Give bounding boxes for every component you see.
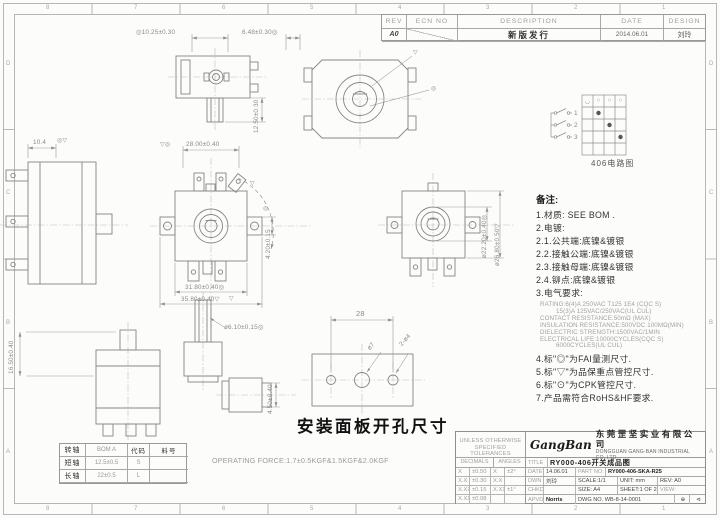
shaft-cell: 短轴 <box>60 457 86 470</box>
view-shaft <box>184 300 224 382</box>
dim-label: 28 <box>356 309 365 318</box>
inspection-marker: ◎ <box>431 85 436 92</box>
rev-header: DESIGN <box>664 15 705 29</box>
zone-col-label: 6 <box>222 506 225 512</box>
zone-col-label: 1 <box>662 5 665 11</box>
title-label: TITLE <box>526 458 548 467</box>
shaft-cell: 22±0.5 <box>86 470 128 483</box>
projection-circle-icon: ⊕ <box>675 495 690 504</box>
tol-cell: ±0.15 <box>470 486 491 495</box>
zone-col-label: 3 <box>486 5 489 11</box>
tol-cell: X.XX <box>491 486 505 495</box>
unit-value: UNIT: mm <box>618 477 658 485</box>
electrical-line: 6000CYCLES(UL CUL) <box>556 343 720 350</box>
zone-col-label: 8 <box>46 5 49 11</box>
note-line: 6.标"⊙"为CPK管控尺寸. <box>536 379 720 392</box>
zone-col-label: 8 <box>46 506 49 512</box>
inspection-marker: ▽ <box>229 295 234 302</box>
projection-cone-icon: ⊲ <box>690 495 705 504</box>
rev-header: REV <box>382 15 407 29</box>
note-line: 1.材质: SEE BOM . <box>536 209 720 222</box>
dim-label: 4.20±0.15 <box>265 229 272 259</box>
zone-row-label: A <box>6 449 10 455</box>
angles-header: ANGLES <box>494 458 525 467</box>
inspection-marker: ▽◎ <box>160 141 170 148</box>
tolerance-table: UNLESS OTHERWISE SPECIFIED TOLERANCES DE… <box>456 432 526 503</box>
panel-cutout-caption: 安装面板开孔尺寸 <box>297 413 449 437</box>
shaft-cell: L <box>128 470 150 483</box>
dim-label: ø26.80±0.50▽ <box>494 223 501 266</box>
dim-label: 28.00±0.40 <box>186 141 219 148</box>
zone-col-label: 2 <box>574 506 577 512</box>
rev-value: REV: A0 <box>658 477 705 485</box>
tolerance-note: SPECIFIED TOLERANCES <box>456 445 525 458</box>
rev-header: ECN NO <box>407 15 458 29</box>
dim-label: 12.50±0.30 <box>253 100 260 133</box>
view-middle-right <box>387 183 480 276</box>
zone-col-label: 5 <box>310 5 313 11</box>
view-top-left <box>176 56 258 122</box>
inspection-marker: ▽ <box>413 49 418 56</box>
dwg-no: DWG NO. WB-8-14-0001 <box>576 495 675 504</box>
apvd-label: APVD <box>526 495 544 504</box>
zone-col-label: 2 <box>574 5 577 11</box>
inspection-marker: ◎ <box>263 205 268 212</box>
title-block: UNLESS OTHERWISE SPECIFIED TOLERANCES DE… <box>455 431 706 504</box>
note-line: 2.电镀: <box>536 222 720 235</box>
zone-row-label: C <box>6 190 10 196</box>
zone-row-label: D <box>709 61 713 67</box>
zone-col-label: 5 <box>310 506 313 512</box>
tol-cell: ±0.30 <box>470 477 491 486</box>
rev-header: DATE <box>601 15 664 29</box>
operating-force-note: OPERATING FORCE:1.7±0.5KGF&1.5KGF&2.0KGF <box>212 456 389 465</box>
dim-label: 31.80±0.40◎ <box>185 284 224 291</box>
inspection-marker: ▽ <box>250 180 255 187</box>
shaft-cell <box>150 457 188 470</box>
apvd-value: Norris <box>544 495 576 504</box>
title-block-main: GangBan 东莞罡坚实业有限公司 DONGGUAN GANG-BAN IND… <box>526 432 705 503</box>
zone-col-label: 1 <box>662 506 665 512</box>
circuit-caption: 406电路图 <box>591 158 634 169</box>
rev-date: 2014.06.01 <box>601 29 664 43</box>
tol-cell: ±1° <box>505 486 525 495</box>
view-bottom-left <box>96 330 160 436</box>
zone-col-label: 7 <box>134 5 137 11</box>
partno-label: PART NO: <box>576 468 606 476</box>
zone-col-label: 4 <box>398 506 401 512</box>
dim-label: ø6.10±0.15◎ <box>224 324 264 331</box>
zone-row-label: A <box>709 449 713 455</box>
shaft-cell: 代码 <box>128 444 150 457</box>
tol-cell: X.XX <box>456 486 470 495</box>
tol-cell <box>505 477 525 486</box>
rev-design: 刘玲 <box>664 29 705 43</box>
note-line: 2.1.公共端:底镍&镀银 <box>536 235 720 248</box>
dwn-label: DWN <box>526 477 544 485</box>
shaft-cell <box>150 470 188 483</box>
zone-col-label: 6 <box>222 5 225 11</box>
scale-value: SCALE:1/1 <box>576 477 618 485</box>
tol-cell: X.X <box>456 477 470 486</box>
circuit-pos1-icon: ○ <box>593 97 604 104</box>
notes-title: 备注: <box>536 192 720 206</box>
dim-label: 35.80±0.40▽ <box>181 296 220 303</box>
zone-col-label: 4 <box>398 5 401 11</box>
shaft-cell: 转轴 <box>60 444 86 457</box>
shaft-cell: S <box>128 457 150 470</box>
dim-label: 16.50±0.40 <box>8 341 15 374</box>
zone-row-label: B <box>6 320 10 326</box>
circuit-pos3-icon: ○ <box>615 97 626 104</box>
tolerance-note: UNLESS OTHERWISE <box>456 438 525 445</box>
circuit-pos2-icon: ○ <box>604 97 615 104</box>
chkd-value <box>544 486 576 494</box>
note-line: 7.产品需符合RoHS&HF要求. <box>536 392 720 405</box>
shaft-cell: BOM A <box>86 444 128 457</box>
drawing-sheet: 8 7 6 5 4 3 2 1 8 7 6 5 4 3 2 1 D C B A … <box>0 0 720 518</box>
shaft-cell: 12.5±0.5 <box>86 457 128 470</box>
dim-label: ◎10.25±0.30 <box>136 29 175 36</box>
partno-value: RY000-406-SKA-R25 <box>606 468 705 476</box>
rev-value: A0 <box>382 29 407 43</box>
rev-header: DESCRIPTION <box>458 15 601 29</box>
chkd-label: CHKD <box>526 486 544 494</box>
note-line: 2.4.铆点:底镍&镀银 <box>536 274 720 287</box>
tol-cell <box>505 495 525 504</box>
circuit-pole-label: 1 <box>574 110 578 117</box>
tol-cell: X.X <box>491 477 505 486</box>
note-line: 4.标"◎"为FAI量测尺寸. <box>536 353 720 366</box>
shaft-cell: 长轴 <box>60 470 86 483</box>
tol-cell: ±2° <box>505 468 525 477</box>
note-line: 5.标"▽"为品保重点管控尺寸. <box>536 366 720 379</box>
shaft-table: 转轴 BOM A 代码 料号 短轴 12.5±0.5 S 长轴 22±0.5 L <box>59 443 187 484</box>
decimals-header: DECIMALS <box>456 458 494 467</box>
tol-cell: X.XXX <box>456 495 470 504</box>
dwn-value: 刘玲 <box>544 477 576 485</box>
drawing-title: RY000-406开关成品图 <box>548 458 705 467</box>
circuit-pole-label: 3 <box>574 134 578 141</box>
zone-col-label: 3 <box>486 506 489 512</box>
dim-label: 10.4 <box>33 139 46 146</box>
size-value: SIZE: A4 <box>576 486 618 494</box>
company-logo: GangBan <box>530 438 592 452</box>
ecn-cell <box>407 29 458 43</box>
circuit-off-icon: ◡ <box>582 97 593 105</box>
zone-col-label: 7 <box>134 506 137 512</box>
shaft-cell: 料号 <box>150 444 188 457</box>
company-name-cn: 东莞罡坚实业有限公司 <box>596 429 705 449</box>
date-value: 14.06.01 <box>544 468 576 476</box>
inspection-marker: ◎▽ <box>57 137 67 144</box>
zone-row-label: D <box>6 61 10 67</box>
note-line: 3.电气要求: <box>536 287 720 300</box>
sheet-value: SHEET:1 OF 2 <box>618 486 658 494</box>
circuit-pole-label: 2 <box>574 122 578 129</box>
view-top-right <box>304 56 429 138</box>
notes-block: 备注: 1.材质: SEE BOM . 2.电镀: 2.1.公共端:底镍&镀银 … <box>536 192 720 405</box>
view-label: VIEW: <box>658 486 705 494</box>
tol-cell <box>491 495 505 504</box>
tol-cell: X <box>456 468 470 477</box>
note-line: 2.3.接触母端:底镍&镀银 <box>536 261 720 274</box>
dim-label: 6.48±0.30◎ <box>242 29 277 36</box>
rev-description: 新版发行 <box>458 29 601 43</box>
view-middle-center <box>160 173 273 281</box>
panel-cutout <box>312 352 413 406</box>
note-line: 2.2.接触公端:底镍&镀银 <box>536 248 720 261</box>
electrical-spec: RATING:6(4)A 250VAC T125 1E4 (CQC S) 15(… <box>540 302 720 350</box>
view-middle-left <box>6 162 112 284</box>
tol-cell: X <box>491 468 505 477</box>
dim-label: ø22.20±0.40◎ <box>481 215 488 258</box>
tol-cell: ±0.50 <box>470 468 491 477</box>
revision-table: REV ECN NO DESCRIPTION DATE DESIGN A0 新版… <box>381 14 706 41</box>
dim-label: 4.50±0.40 <box>267 384 274 414</box>
tol-cell: ±0.08 <box>470 495 491 504</box>
date-label: DATE <box>526 468 544 476</box>
